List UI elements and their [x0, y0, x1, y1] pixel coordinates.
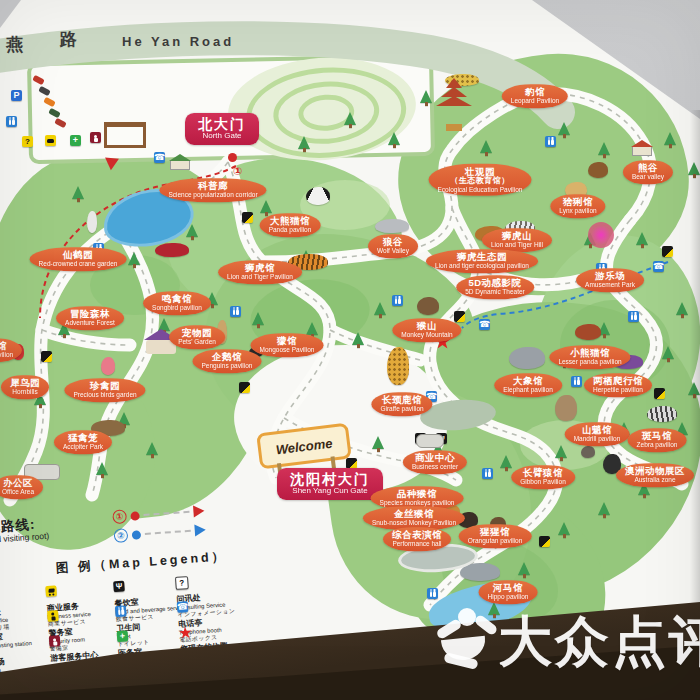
infow-icon: ?: [175, 576, 189, 590]
label-cn: 澳洲动物展区: [625, 466, 685, 476]
tree-icon: [260, 200, 272, 213]
toilet-icon: [482, 468, 493, 479]
giraffe-illustration: [387, 347, 409, 385]
north-gate-structure: [104, 122, 146, 148]
label-en: Orangutan pavilion: [468, 538, 523, 545]
label-cn: 狮虎生态园: [435, 252, 529, 262]
label-cn: 猴山: [401, 321, 452, 331]
label-en: Snub-nosed Monkey Pavilion: [372, 520, 456, 527]
toilet-icon: [115, 605, 127, 617]
hut-icon: [170, 160, 190, 170]
label-cn: 北大门: [198, 117, 246, 132]
phone-icon: ☎: [177, 601, 189, 613]
service-icon: [41, 351, 52, 362]
label-penguins-pavilion: 企鹅馆Penguins pavilion: [193, 349, 262, 373]
label-en: Giraffe pavilion: [380, 406, 423, 413]
service-icon: [662, 246, 673, 257]
label-songbird-pavilion: 鸣禽馆Songbird pavilion: [143, 291, 211, 315]
toilet-icon: [392, 295, 403, 306]
label-cn: 狼谷: [377, 237, 409, 247]
label-en: Science popularization corridor: [168, 192, 257, 199]
tree-icon: [598, 502, 610, 515]
label-cn: 两栖爬行馆: [593, 376, 643, 386]
route-number-marker: ①: [233, 165, 242, 178]
tree-icon: [598, 142, 610, 155]
label-en: Lion and Tiger Pavilion: [227, 274, 293, 281]
label-en: 5D Dynamic Theater: [465, 289, 525, 296]
label-en: Lion and tiger ecological pavilion: [435, 263, 529, 270]
label-cn: 山魈馆: [574, 425, 621, 435]
crane-illustration: [87, 211, 97, 233]
label-cn: 5D动感影院: [465, 278, 525, 288]
medical-icon: +: [70, 135, 81, 146]
label-cn: 狮虎山: [491, 231, 543, 241]
guide-icon: [90, 132, 101, 143]
elephant-illustration: [509, 347, 545, 369]
toilet-icon: [545, 136, 556, 147]
security-icon: [47, 610, 59, 622]
pagoda-icon: [436, 96, 472, 130]
wolf-illustration: [375, 219, 409, 233]
label-amusement-park: 游乐场Amusement Park: [576, 268, 644, 292]
tree-icon: [128, 252, 140, 265]
label-en: Hippo pavilion: [488, 594, 529, 601]
label-en: Lesser panda pavilion: [558, 359, 621, 366]
tree-icon: [374, 302, 386, 315]
label-en: Songbird pavilion: [152, 305, 202, 312]
label-cn: 猞猁馆: [559, 197, 596, 207]
label-mongoose-pavilion: 獴馆Mongoose Pavilion: [251, 333, 324, 357]
label-adventure-forest: 冒险森林Adventure Forest: [56, 306, 124, 330]
label-en: Australia zone: [625, 477, 685, 484]
cart-icon: [45, 585, 57, 597]
service-icon: [454, 311, 465, 322]
label-en: Pets' Garden: [178, 339, 216, 346]
label-cn: 猛禽笼: [63, 433, 103, 443]
tree-icon: [420, 90, 432, 103]
tree-icon: [372, 436, 384, 449]
songbird-illustration: [155, 243, 189, 257]
label-en: Penguins pavilion: [202, 363, 253, 370]
label-cn: 办公区: [2, 478, 34, 488]
label-en: Office Area: [2, 489, 34, 496]
label-cn: 大熊猫馆: [269, 216, 312, 226]
label-cn: 企鹅馆: [202, 352, 253, 362]
label-business-center: 商业中心Business center: [403, 450, 467, 474]
label-en: Precious birds garden: [73, 392, 136, 399]
label-cn: 斑马馆: [637, 431, 678, 441]
route-number: ②: [113, 528, 128, 543]
label-en: Performance hall: [392, 541, 442, 548]
label-shenyangcun-gate: 沈阳村大门Shen Yang Cun Gate: [277, 468, 383, 500]
service-icon: [539, 536, 550, 547]
label-en: Elephant pavilion: [503, 387, 553, 394]
label-elephant-pavilion: 大象馆Elephant pavilion: [494, 373, 562, 397]
label-en: Herpetile pavilion: [593, 387, 643, 394]
label-crane-garden: 仙鹤园Red-crowned crane garden: [30, 247, 127, 271]
label-en: Red-crowned crane garden: [39, 261, 118, 268]
label-cn: 鸣禽馆: [152, 294, 202, 304]
label-hippo-pavilion: 河马馆Hippo pavilion: [479, 580, 538, 604]
label-en: North Gate: [198, 132, 246, 141]
zoo-map-sign: ☎☎☎☎Ψ?+P ① Welcome 燕 路 He Yan Road 北大门No…: [0, 0, 700, 700]
label-precious-birds-garden: 珍禽园Precious birds garden: [64, 378, 145, 402]
label-en: Gibbon Pavilion: [520, 479, 566, 486]
label-cn: 长臂猿馆: [520, 468, 566, 478]
label-cn: 狮虎馆: [227, 263, 293, 273]
tree-icon: [636, 232, 648, 245]
road-name-cn-right: 路: [60, 28, 77, 51]
label-performance-hall: 综合表演馆Performance hall: [383, 527, 451, 551]
label-panda-pavilion: 大熊猫馆Panda pavilion: [260, 213, 321, 237]
route-start-dot: [228, 153, 237, 162]
tree-icon: [72, 186, 84, 199]
legend-route-2: ②: [113, 523, 206, 543]
label-cn: 冒险森林: [65, 309, 115, 319]
label-en: Mongoose Pavilion: [260, 347, 315, 354]
label-lynx-pavilion: 猞猁馆Lynx pavilion: [550, 194, 605, 218]
label-cn2: （生态教育馆）: [438, 177, 523, 186]
dianping-watermark: 大众点评: [498, 606, 700, 679]
tree-icon: [186, 224, 198, 237]
label-cn: 沈阳村大门: [290, 472, 370, 487]
label-en: Hornbills: [10, 389, 40, 396]
label-cn: 金丝猴馆: [372, 509, 456, 519]
monkey-illustration: [417, 297, 439, 315]
route-arrow: [193, 505, 205, 518]
label-australia-zone: 澳洲动物展区Australia zone: [616, 463, 694, 487]
label-accipiter-park: 猛禽笼Accipiter Park: [54, 430, 112, 454]
label-cn: 游乐场: [585, 271, 635, 281]
label-cn: 猩猩馆: [468, 527, 523, 537]
tree-icon: [480, 140, 492, 153]
label-en: Parrot Pavilion: [0, 352, 13, 359]
label-cn: 科普廊: [168, 181, 257, 191]
zebra-illustration: [647, 406, 677, 422]
label-cn: 熊谷: [632, 163, 664, 173]
label-herpetile-pavilion: 两栖爬行馆Herpetile pavilion: [584, 373, 652, 397]
label-cn: 长颈鹿馆: [380, 395, 423, 405]
tree-icon: [252, 312, 264, 325]
label-en: Business center: [412, 464, 458, 471]
tree-icon: [500, 455, 512, 468]
phone-icon: ☎: [154, 152, 165, 163]
psign-icon: P: [11, 90, 22, 101]
legend-title-en: (recommended visiting root): [0, 531, 49, 548]
tree-icon: [306, 322, 318, 335]
service-icon: [239, 382, 250, 393]
star-icon: [178, 626, 190, 638]
label-giraffe-pavilion: 长颈鹿馆Giraffe pavilion: [371, 392, 432, 416]
label-zebra-pavilion: 斑马馆Zebra pavilion: [628, 428, 687, 452]
flamingo-illustration: [101, 357, 115, 375]
label-en: Bear valley: [632, 174, 664, 181]
label-en: Monkey Mountain: [401, 332, 452, 339]
legend-item-broadcast: 广播室Broadcasting station放送室: [0, 611, 32, 657]
toilet-icon: [427, 588, 438, 599]
label-cn: 珍禽园: [73, 381, 136, 391]
legend-header: 图 例（Map Legend）: [56, 548, 228, 577]
label-cn: 综合表演馆: [392, 530, 442, 540]
legend-route-1: ①: [112, 504, 205, 524]
label-lion-tiger-ecological-garden: 狮虎生态园Lion and tiger ecological pavilion: [426, 249, 538, 273]
tree-icon: [664, 132, 676, 145]
label-en: Panda pavilion: [269, 227, 312, 234]
kangaroo-illustration: [555, 395, 577, 421]
label-mandrill-pavilion: 山魈馆Mandrill pavilion: [565, 422, 630, 446]
label-en: Leopard Pavilion: [511, 98, 559, 105]
car-icon: [45, 135, 56, 146]
label-cn: 大象馆: [503, 376, 553, 386]
amusement-ride-icon: [588, 222, 614, 248]
label-en: Ecological Education Pavilion: [438, 186, 523, 193]
route-dot: [132, 530, 142, 540]
label-en: Wolf Valley: [377, 248, 409, 255]
service-icon: [242, 212, 253, 223]
label-bear-valley: 熊谷Bear valley: [623, 160, 673, 184]
mandrill-illustration: [581, 446, 595, 458]
label-cn: 仙鹤园: [39, 250, 118, 260]
label-en: Adventure Forest: [65, 320, 115, 327]
label-en: Lion and Tiger Hill: [491, 242, 543, 249]
label-cn: 小熊猫馆: [558, 348, 621, 358]
label-en: Lynx pavilion: [559, 208, 596, 215]
tree-icon: [96, 462, 108, 475]
label-en: Zebra pavilion: [637, 442, 678, 449]
label-leopard-pavilion: 豹馆Leopard Pavilion: [502, 84, 568, 108]
bear-house-icon: [632, 146, 652, 156]
label-cn: 犀鸟园: [10, 378, 40, 388]
food-icon: Ψ: [113, 581, 125, 593]
toilet-icon: [628, 311, 639, 322]
label-cn: 宠物园: [178, 328, 216, 338]
tree-icon: [344, 112, 356, 125]
label-cn: 鹦鹉馆: [0, 341, 13, 351]
label-lesser-panda-pavilion: 小熊猫馆Lesser panda pavilion: [549, 345, 630, 369]
label-cn: 河马馆: [488, 583, 529, 593]
tree-icon: [676, 302, 688, 315]
tree-icon: [352, 332, 364, 345]
label-north-gate: 北大门North Gate: [185, 113, 259, 145]
tree-icon: [662, 346, 674, 359]
label-wolf-valley: 狼谷Wolf Valley: [368, 234, 418, 258]
red-panda-illustration: [575, 324, 601, 340]
route-arrow: [194, 524, 206, 537]
label-pets-garden: 宠物园Pets' Garden: [169, 325, 225, 349]
question-icon: ?: [22, 136, 33, 147]
label-en: Amusement Park: [585, 282, 635, 289]
road-name-en: He Yan Road: [122, 34, 234, 49]
route-number: ①: [112, 509, 127, 524]
tree-icon: [558, 522, 570, 535]
toilet-icon: [230, 306, 241, 317]
label-hornbills: 犀鸟园Hornbills: [1, 375, 49, 399]
label-en: Mandrill pavilion: [574, 436, 621, 443]
medical-icon: +: [117, 630, 129, 642]
panda-illustration: [306, 187, 330, 205]
photo-edge-shading: [690, 110, 700, 630]
road-name-cn-left: 燕: [6, 33, 23, 56]
label-ecological-education-pavilion: 壮观园（生态教育馆）Ecological Education Pavilion: [429, 164, 532, 196]
route-dash-line: [145, 530, 191, 535]
route-dash-line: [143, 511, 189, 516]
label-science-corridor: 科普廊Science popularization corridor: [159, 178, 266, 202]
bear-illustration: [588, 162, 608, 178]
phone-icon: ☎: [479, 319, 490, 330]
label-en: Accipiter Park: [63, 444, 103, 451]
star-icon: [178, 626, 192, 640]
walk-path: [42, 330, 130, 345]
tree-icon: [298, 136, 310, 149]
legend-text-cn: 停车场: [0, 657, 5, 668]
label-lion-tiger-pavilion: 狮虎馆Lion and Tiger Pavilion: [218, 260, 302, 284]
service-icon: [654, 388, 665, 399]
business-center-buildings: [416, 434, 444, 448]
label-office-area: 办公区Office Area: [0, 475, 43, 499]
label-gibbon-pavilion: 长臂猿馆Gibbon Pavilion: [511, 465, 575, 489]
tree-icon: [518, 562, 530, 575]
label-en: Shen Yang Cun Gate: [290, 487, 370, 496]
label-cn: 豹馆: [511, 87, 559, 97]
label-5d-dynamic-theater: 5D动感影院5D Dynamic Theater: [456, 275, 534, 299]
label-orangutan-pavilion: 猩猩馆Orangutan pavilion: [459, 524, 532, 548]
label-cn: 品种猴馆: [380, 489, 455, 499]
route-dot: [130, 511, 140, 521]
label-monkey-mountain: 猴山Monkey Mountain: [392, 318, 461, 342]
tree-icon: [555, 445, 567, 458]
tree-icon: [146, 442, 158, 455]
toilet-icon: [571, 376, 582, 387]
tree-icon: [388, 132, 400, 145]
toilet-icon: [6, 116, 17, 127]
label-cn: 獴馆: [260, 336, 315, 346]
tree-icon: [558, 122, 570, 135]
label-cn: 商业中心: [412, 453, 458, 463]
phone-icon: ☎: [653, 261, 664, 272]
dianping-logo-icon: [436, 608, 496, 672]
guide-icon: [49, 635, 61, 647]
